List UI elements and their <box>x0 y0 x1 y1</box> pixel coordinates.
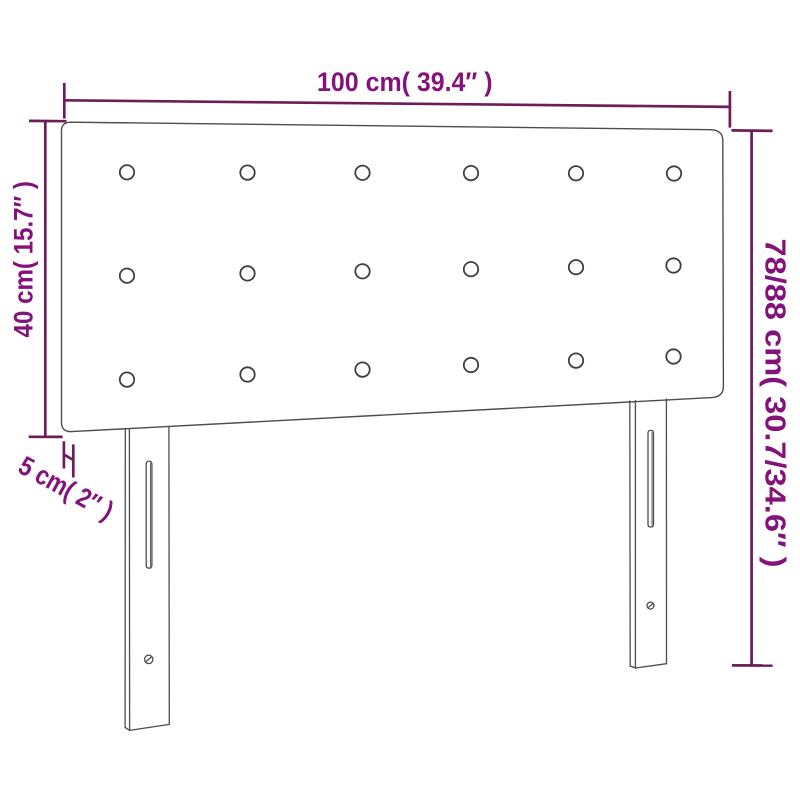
svg-text:100 cm( 39.4″ ): 100 cm( 39.4″ ) <box>317 67 493 97</box>
svg-text:40 cm( 15.7″ ): 40 cm( 15.7″ ) <box>9 181 39 337</box>
svg-text:78/88 cm( 30.7/34.6″ ): 78/88 cm( 30.7/34.6″ ) <box>758 239 790 568</box>
